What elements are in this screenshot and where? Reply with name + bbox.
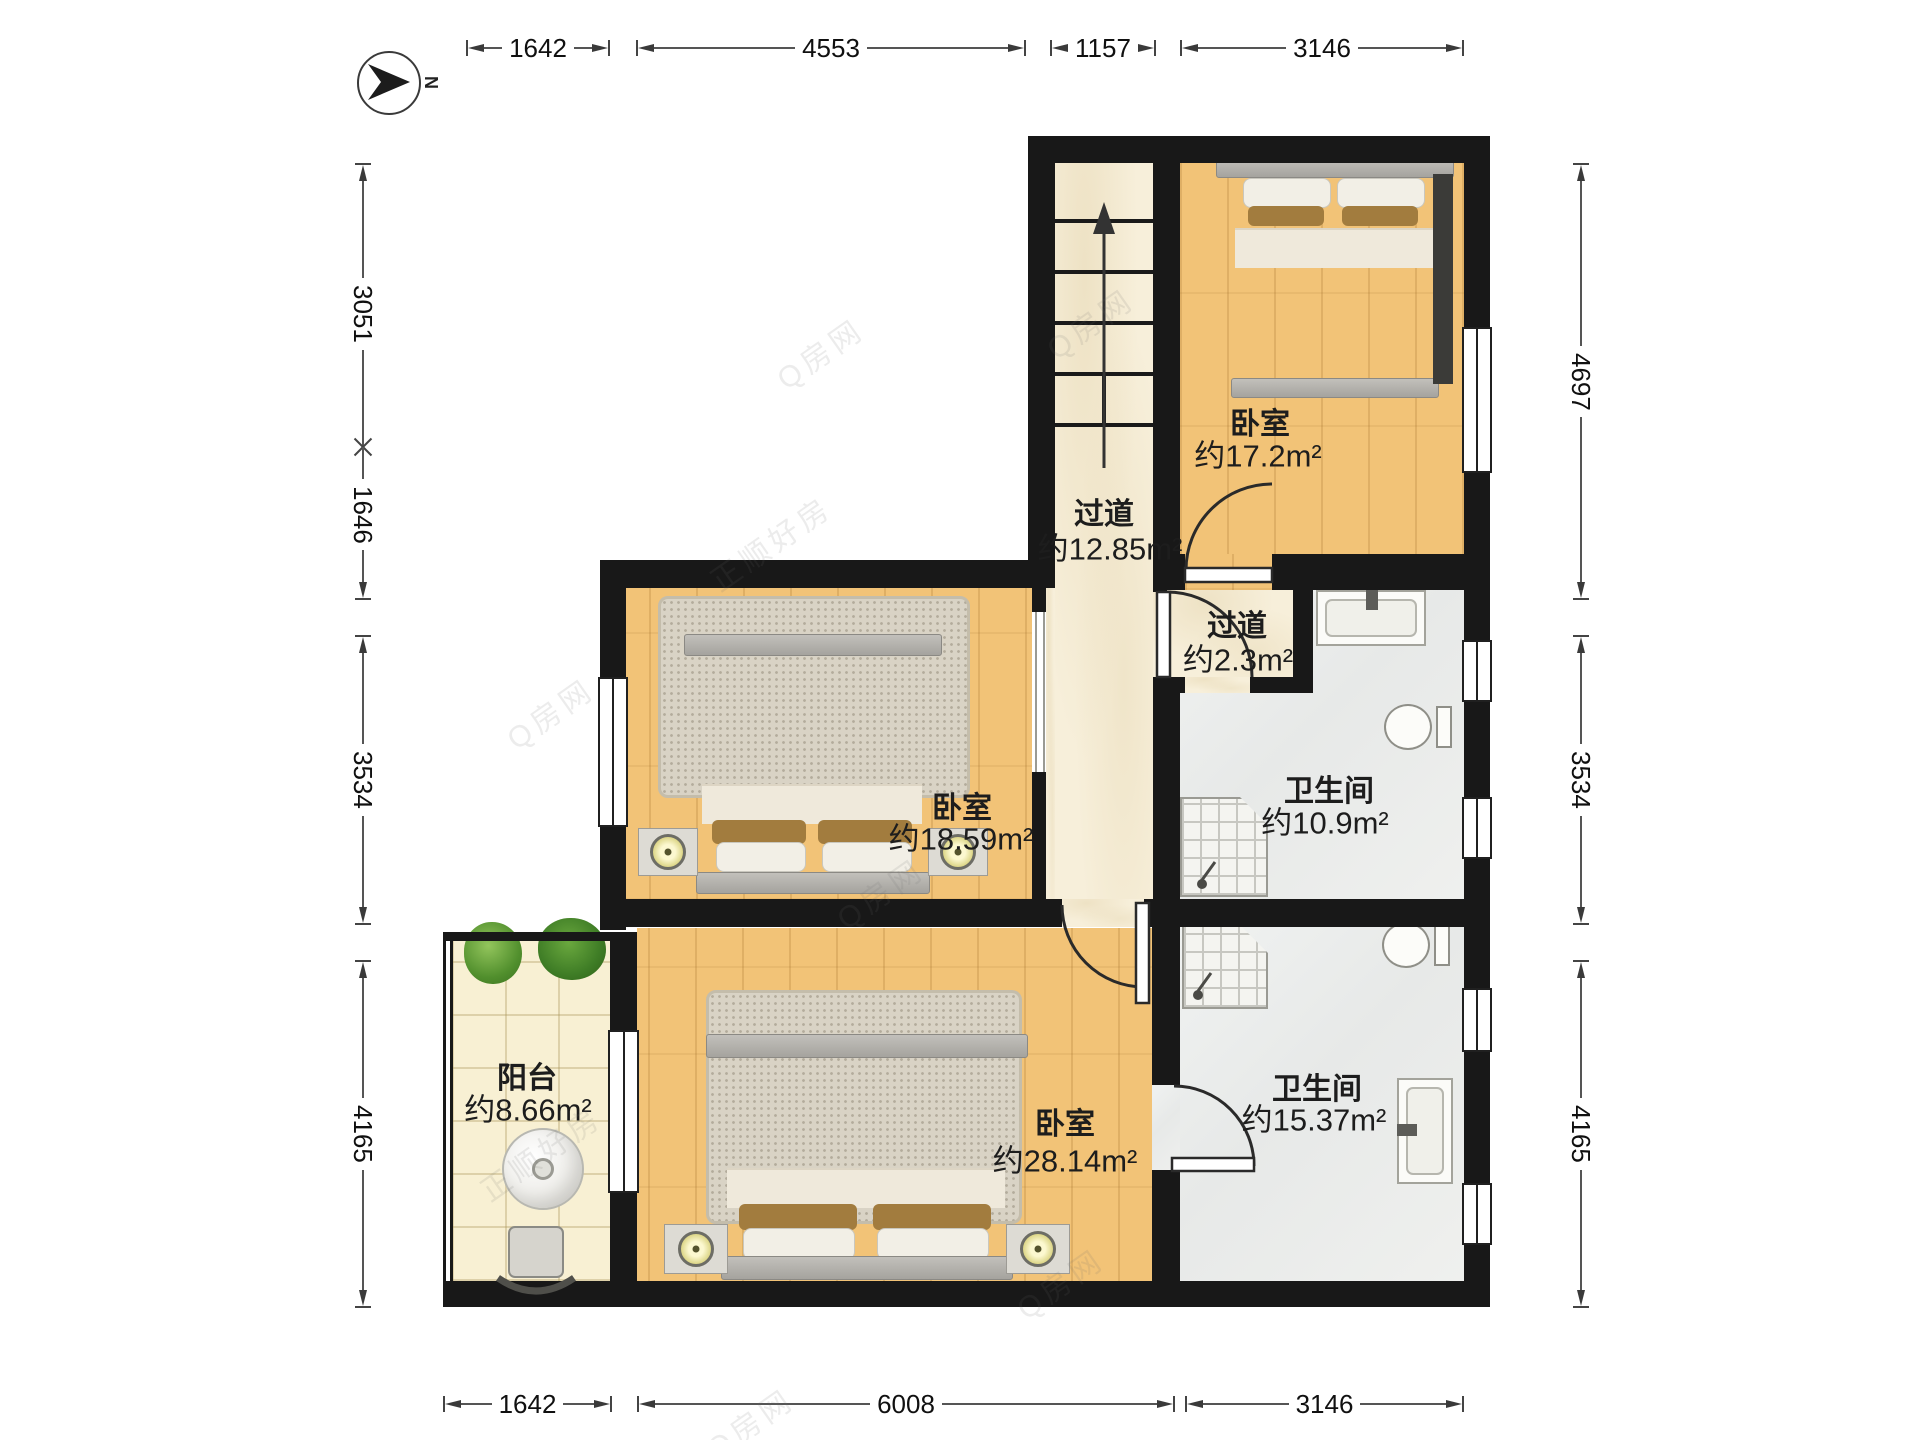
dimension-top-1: 1642 — [466, 34, 610, 62]
dimension-right-2: 3534 — [1566, 635, 1596, 925]
compass-icon — [357, 51, 421, 115]
dimension-right-1: 4697 — [1566, 163, 1596, 600]
dimension-left-1: 3051 — [348, 163, 378, 447]
dimension-bottom-2: 6008 — [637, 1390, 1175, 1418]
dimension-value: 4165 — [1568, 1105, 1594, 1163]
dimension-value: 4697 — [1568, 353, 1594, 411]
dimension-value: 3051 — [350, 285, 376, 343]
compass-north-label: N — [420, 76, 441, 89]
dimension-value: 3146 — [1293, 35, 1351, 61]
dimension-value: 3146 — [1296, 1391, 1354, 1417]
chair-back — [498, 1278, 574, 1291]
room-area-bath-upper: 约10.9m² — [1261, 798, 1388, 843]
dimension-right-3: 4165 — [1566, 960, 1596, 1308]
dimension-value: 3534 — [1568, 751, 1594, 809]
dimension-value: 4553 — [802, 35, 860, 61]
dimension-value: 3534 — [350, 751, 376, 809]
shower-head-icon — [1193, 973, 1211, 1000]
room-area-balcony: 约8.66m² — [464, 1085, 591, 1130]
dimension-left-3: 3534 — [348, 635, 378, 925]
dimension-value: 1157 — [1075, 35, 1131, 61]
dimension-bottom-3: 3146 — [1185, 1390, 1464, 1418]
dimension-value: 4165 — [350, 1105, 376, 1163]
plan-overlay-graphics — [0, 0, 1920, 1440]
room-area-corridor-main: 约12.85m² — [1038, 524, 1183, 569]
dimension-value: 1642 — [509, 35, 567, 61]
floor-plan-canvas: N 卧室 约17.2m² 过道 约12.85m² 过道 约2.3m² 卫生间 约… — [0, 0, 1920, 1440]
room-area-corridor-small: 约2.3m² — [1183, 635, 1293, 680]
door-bedroom-top-right — [1185, 484, 1272, 582]
room-area-bedroom-mid: 约18.59m² — [889, 814, 1034, 859]
dimension-value: 6008 — [877, 1391, 935, 1417]
room-area-bedroom-tr: 约17.2m² — [1194, 431, 1321, 476]
dimension-value: 1646 — [350, 486, 376, 544]
dimension-top-2: 4553 — [636, 34, 1026, 62]
dimension-left-2: 1646 — [348, 447, 378, 600]
shower-head-icon — [1197, 862, 1215, 889]
dimension-top-3: 1157 — [1050, 34, 1158, 62]
dimension-left-4: 4165 — [348, 960, 378, 1308]
dimension-value: 1642 — [499, 1391, 557, 1417]
room-area-bath-lower: 约15.37m² — [1242, 1095, 1387, 1140]
door-bedroom-large — [1062, 903, 1149, 1003]
dimension-top-4: 3146 — [1180, 34, 1464, 62]
dimension-bottom-1: 1642 — [443, 1390, 612, 1418]
room-area-bedroom-lg: 约28.14m² — [993, 1136, 1138, 1181]
stairs-up-arrow-icon — [1093, 202, 1115, 468]
